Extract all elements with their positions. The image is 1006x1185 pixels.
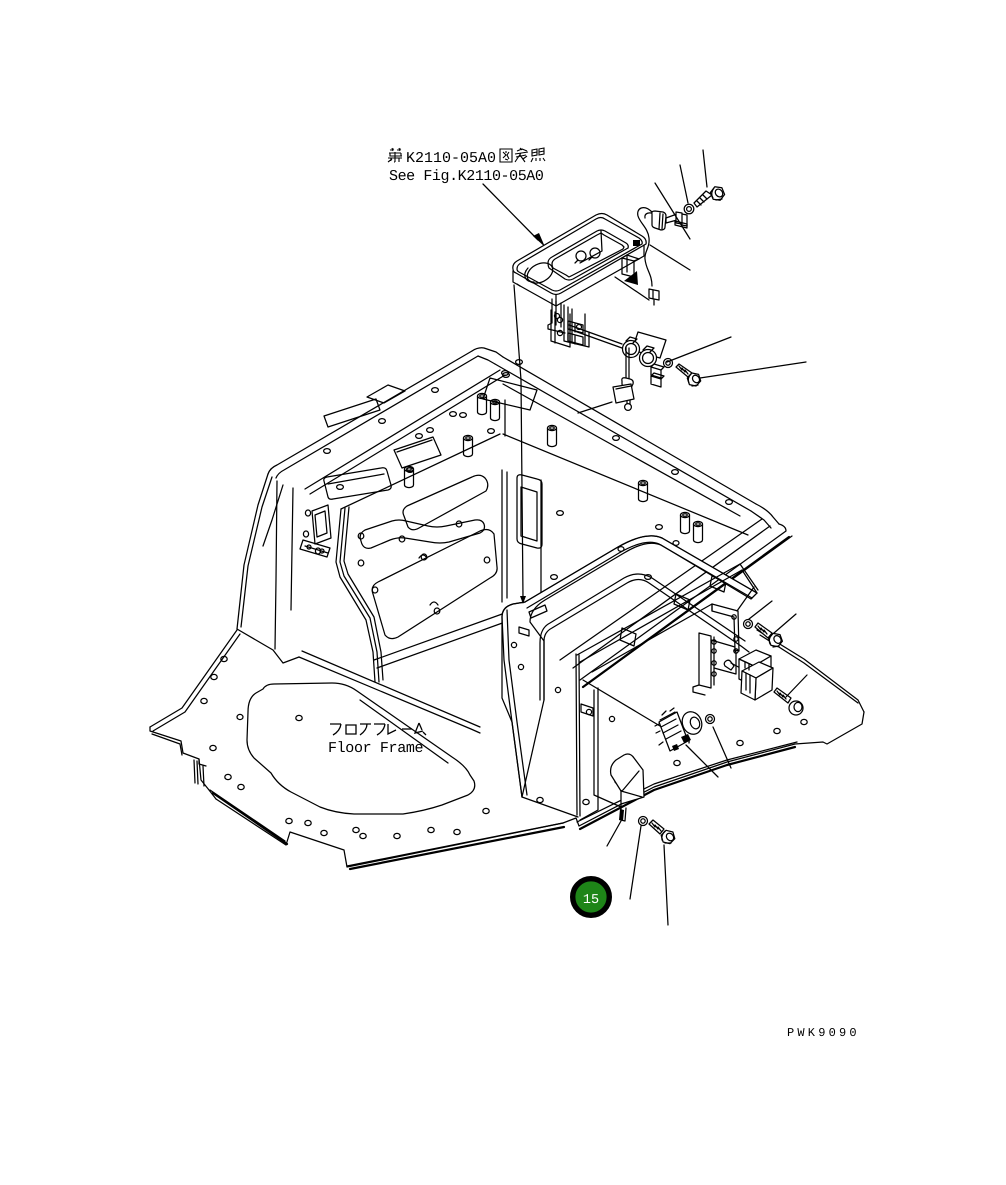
svg-text:Floor Frame: Floor Frame	[328, 740, 424, 757]
svg-text:See Fig.K2110-05A0: See Fig.K2110-05A0	[389, 168, 544, 185]
svg-text:15: 15	[583, 893, 599, 908]
svg-text:K2110-05A0: K2110-05A0	[406, 150, 496, 167]
svg-text:PWK9090: PWK9090	[787, 1026, 860, 1040]
